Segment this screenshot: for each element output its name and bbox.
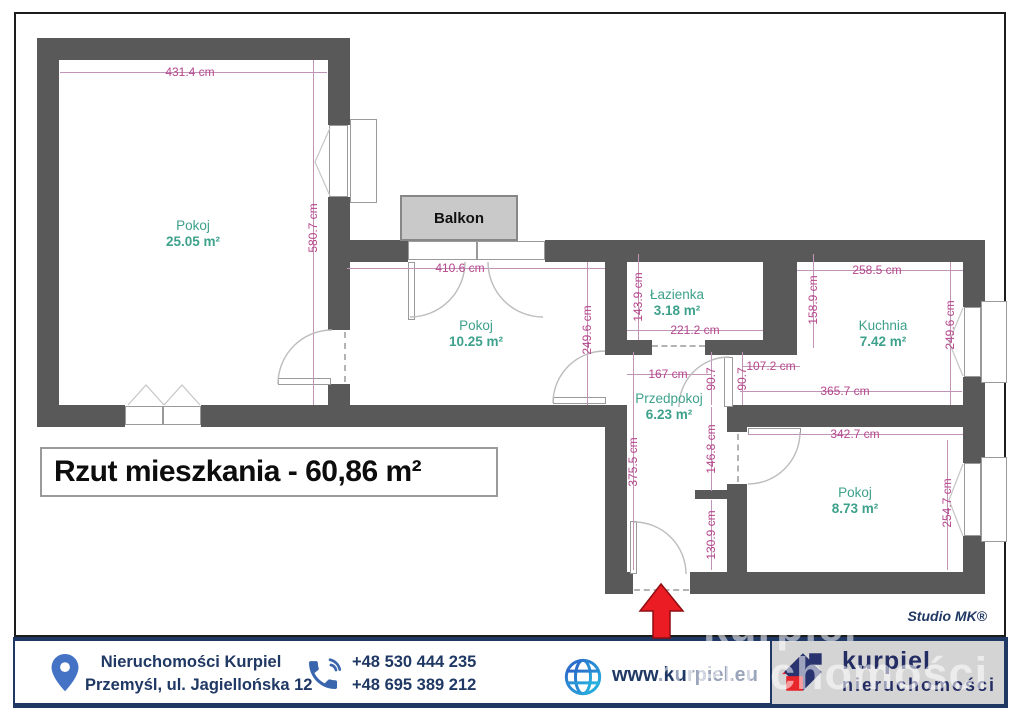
- wall-segment: [690, 572, 985, 594]
- website-rest-part: rpiel.eu: [687, 664, 758, 686]
- door-leaf: [553, 397, 606, 404]
- door-leaf: [278, 378, 331, 385]
- dimension-label: 258.5 cm: [852, 263, 901, 277]
- dimension-label: 130.9 cm: [704, 510, 718, 559]
- wall-segment: [763, 262, 797, 340]
- dimension-label: 342.7 cm: [830, 427, 879, 441]
- floor-plan-page: Balkon 431.4 cm 580.7 cm 410.6 cm 249.6 …: [0, 0, 1024, 724]
- dimension-label: 90.7: [704, 367, 718, 390]
- globe-icon: [563, 657, 603, 697]
- dimension-label: 90.7: [735, 367, 749, 390]
- room-label-room2: Pokoj 10.25 m²: [449, 318, 503, 350]
- wall-segment: [605, 405, 627, 572]
- door-opening-dashed: [344, 332, 346, 382]
- window: [163, 406, 201, 425]
- wall-stub: [695, 490, 747, 499]
- phone-icon: [303, 656, 345, 692]
- room-name: Pokoj: [166, 218, 220, 234]
- window: [125, 406, 163, 425]
- dimension-label: 107.2 cm: [746, 359, 795, 373]
- plan-title: Rzut mieszkania - 60,86 m²: [40, 447, 498, 497]
- logo-wordmark-line2: nieruchomości: [842, 675, 996, 696]
- room-label-room1: Pokoj 25.05 m²: [166, 218, 220, 250]
- room-name: Pokoj: [449, 318, 503, 334]
- room-area: 7.42 m²: [859, 334, 908, 350]
- website-bold-part: www.ku: [612, 664, 687, 686]
- wall-segment: [328, 262, 350, 330]
- wall-segment: [605, 340, 652, 355]
- room-area: 25.05 m²: [166, 234, 220, 250]
- wall-segment: [37, 405, 125, 427]
- window: [964, 463, 981, 536]
- room-area: 10.25 m²: [449, 334, 503, 350]
- company-address: Nieruchomości Kurpiel Przemyśl, ul. Jagi…: [85, 651, 297, 697]
- phone-number-1: +48 530 444 235: [352, 651, 476, 674]
- dimension-label: 580.7 cm: [306, 203, 320, 252]
- window-sill: [350, 119, 377, 203]
- dimension-label: 365.7 cm: [820, 384, 869, 398]
- window-sill: [981, 457, 1007, 542]
- dimension-label: 254.7 cm: [940, 478, 954, 527]
- wall-segment: [727, 427, 747, 432]
- dimension-label: 375.5 cm: [626, 437, 640, 486]
- room-area: 3.18 m²: [650, 303, 704, 319]
- dimension-label: 410.6 cm: [435, 261, 484, 275]
- room-label-room3: Pokoj 8.73 m²: [832, 485, 879, 517]
- wall-segment: [705, 340, 797, 355]
- wall-segment: [605, 240, 985, 262]
- dimension-label: 431.4 cm: [165, 65, 214, 79]
- company-street: Przemyśl, ul. Jagiellońska 12: [85, 674, 297, 697]
- studio-credit: Studio MK®: [855, 608, 987, 624]
- window: [964, 307, 981, 377]
- wall-segment: [328, 197, 350, 262]
- room-name: Pokoj: [832, 485, 879, 501]
- balcony-label: Balkon: [400, 195, 518, 241]
- house-logo-icon: [780, 648, 830, 696]
- dimension-label: 249.6 cm: [580, 305, 594, 354]
- room-name: Łazienka: [650, 287, 704, 303]
- dimension-label: 158.9 cm: [806, 275, 820, 324]
- wall-segment: [37, 38, 59, 427]
- dimension-label: 146.8 cm: [704, 424, 718, 473]
- room-label-bathroom: Łazienka 3.18 m²: [650, 287, 704, 319]
- room-area: 6.23 m²: [635, 407, 703, 423]
- balcony-door: [408, 241, 477, 260]
- dimension-label: 143.9 cm: [631, 272, 645, 321]
- balcony-door: [477, 241, 545, 260]
- room-name: Przedpokoj: [635, 391, 703, 407]
- location-pin-icon: [46, 652, 84, 694]
- plan-border: [14, 12, 1006, 637]
- room-label-hallway: Przedpokoj 6.23 m²: [635, 391, 703, 423]
- wall-segment: [727, 405, 985, 427]
- wall-segment: [545, 240, 605, 262]
- room-name: Kuchnia: [859, 318, 908, 334]
- logo-wordmark-line1: kurpiel: [842, 647, 931, 676]
- room-area: 8.73 m²: [832, 501, 879, 517]
- company-name: Nieruchomości Kurpiel: [85, 651, 297, 674]
- entrance-threshold-dashed: [634, 589, 689, 591]
- wall-segment: [37, 38, 350, 60]
- phone-number-2: +48 695 389 212: [352, 674, 476, 697]
- wall-segment: [605, 572, 633, 594]
- phone-numbers: +48 530 444 235 +48 695 389 212: [352, 651, 476, 697]
- dimension-label: 221.2 cm: [670, 323, 719, 337]
- window: [329, 125, 348, 197]
- dimension-label: 167 cm: [648, 367, 687, 381]
- door-opening-dashed: [737, 434, 739, 482]
- sliding-door-dashed: [652, 345, 705, 347]
- door-leaf: [724, 357, 733, 407]
- dimension-label: 249.6 cm: [943, 300, 957, 349]
- room-label-kitchen: Kuchnia 7.42 m²: [859, 318, 908, 350]
- wall-segment: [605, 262, 627, 352]
- door-leaf: [408, 262, 415, 320]
- wall-segment: [350, 240, 408, 262]
- website-url[interactable]: www.kurpiel.eu: [612, 664, 758, 687]
- wall-segment: [328, 38, 350, 125]
- wall-segment: [328, 384, 350, 427]
- wall-segment: [362, 405, 605, 427]
- window-sill: [981, 301, 1007, 383]
